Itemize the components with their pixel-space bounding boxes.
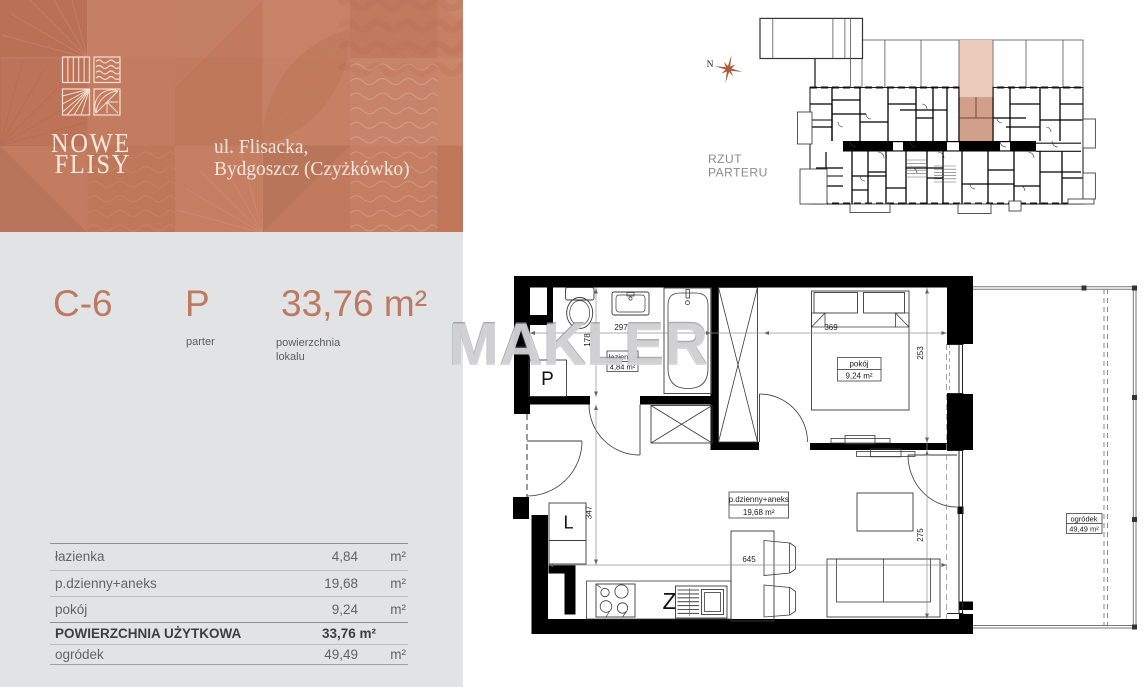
svg-text:645: 645 [742,555,756,564]
svg-text:N: N [707,60,714,70]
svg-text:PARTERU: PARTERU [708,166,768,180]
svg-text:19,68 m²: 19,68 m² [743,508,775,517]
svg-text:L: L [563,513,573,533]
svg-text:49,49 m²: 49,49 m² [1069,525,1099,534]
svg-text:9,24 m²: 9,24 m² [845,372,872,381]
svg-text:RZUT: RZUT [708,152,742,166]
svg-text:p.dzienny+aneks: p.dzienny+aneks [729,495,789,504]
svg-text:pokój: pokój [849,360,868,369]
svg-text:347: 347 [585,505,594,519]
svg-text:253: 253 [916,346,925,360]
svg-text:ogródek: ogródek [1070,515,1097,524]
svg-text:275: 275 [916,528,925,542]
svg-text:369: 369 [824,323,838,332]
svg-text:Z: Z [662,588,676,614]
